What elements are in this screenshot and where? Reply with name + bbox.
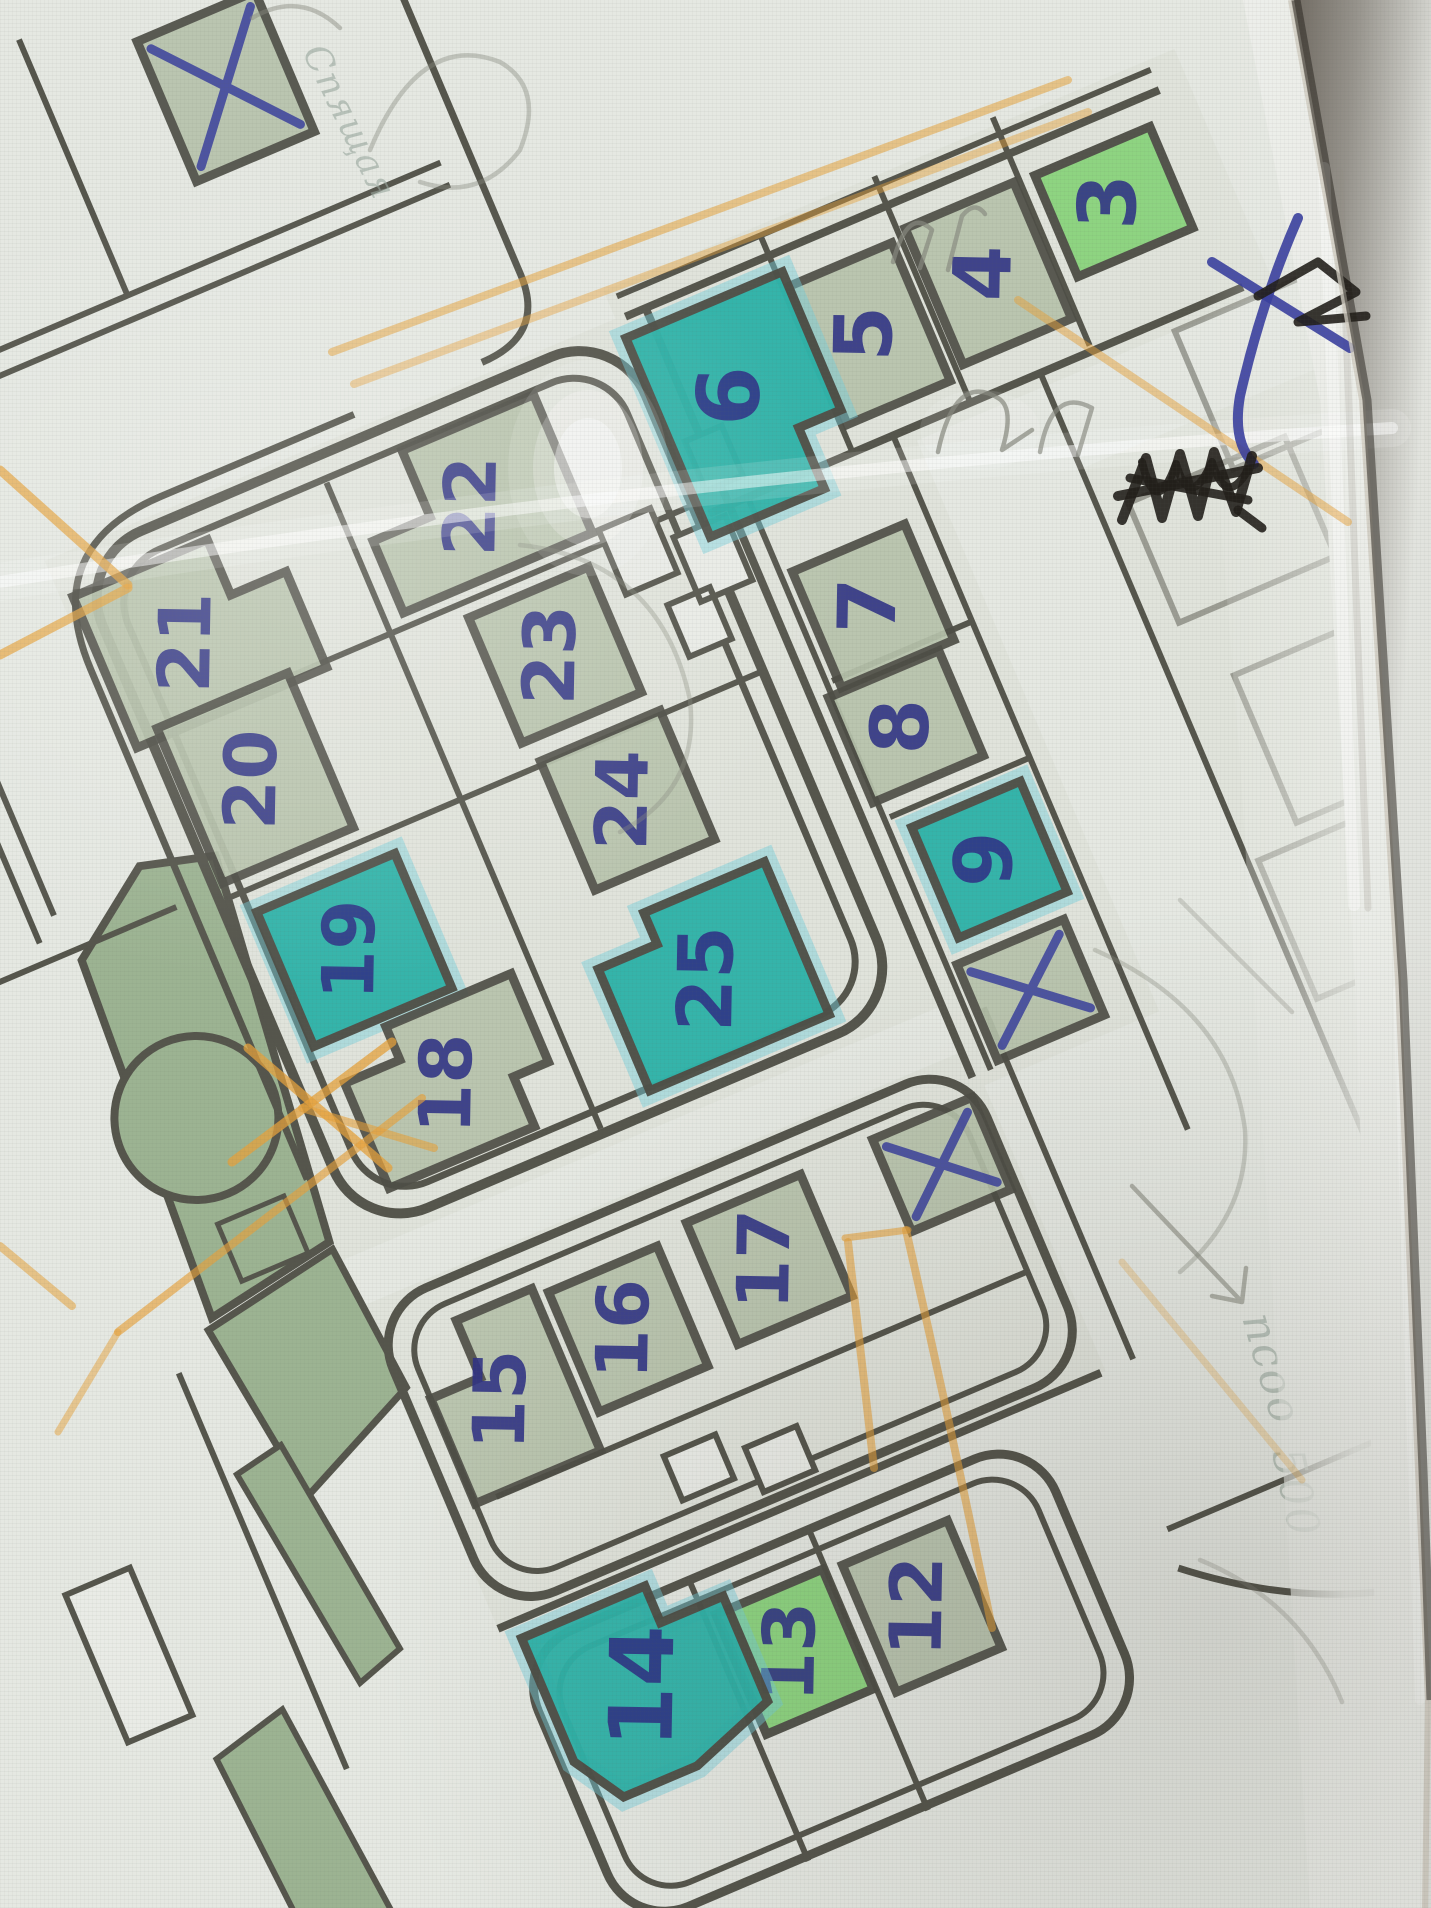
- building-number: 18: [403, 1033, 489, 1135]
- building-number: 12: [874, 1555, 960, 1657]
- map-photo-canvas: 34567892221232024192518171615121314 Спящ…: [0, 0, 1431, 1908]
- building-number: 25: [660, 925, 751, 1032]
- building-number: 7: [821, 577, 915, 634]
- building-number: 6: [679, 365, 780, 427]
- building-number: 20: [208, 729, 294, 831]
- crease-highlight: [920, 390, 1040, 470]
- crease-highlight: [508, 360, 668, 576]
- building-number: 19: [306, 899, 392, 1001]
- building-number: 15: [457, 1349, 543, 1451]
- building-number: 17: [721, 1208, 807, 1310]
- building-number: 24: [579, 749, 665, 851]
- building-number: 3: [1061, 173, 1155, 230]
- building-number: 8: [853, 698, 947, 755]
- building-9: 9: [912, 781, 1068, 938]
- building-number: 9: [937, 831, 1031, 888]
- photo-of-annotated-paper-map: 34567892221232024192518171615121314 Спящ…: [0, 0, 1431, 1908]
- building-number: 14: [589, 1624, 694, 1748]
- building-number: 21: [142, 592, 228, 694]
- building-number: 23: [507, 604, 593, 706]
- building-number: 16: [580, 1278, 666, 1380]
- building-number: 4: [936, 245, 1030, 302]
